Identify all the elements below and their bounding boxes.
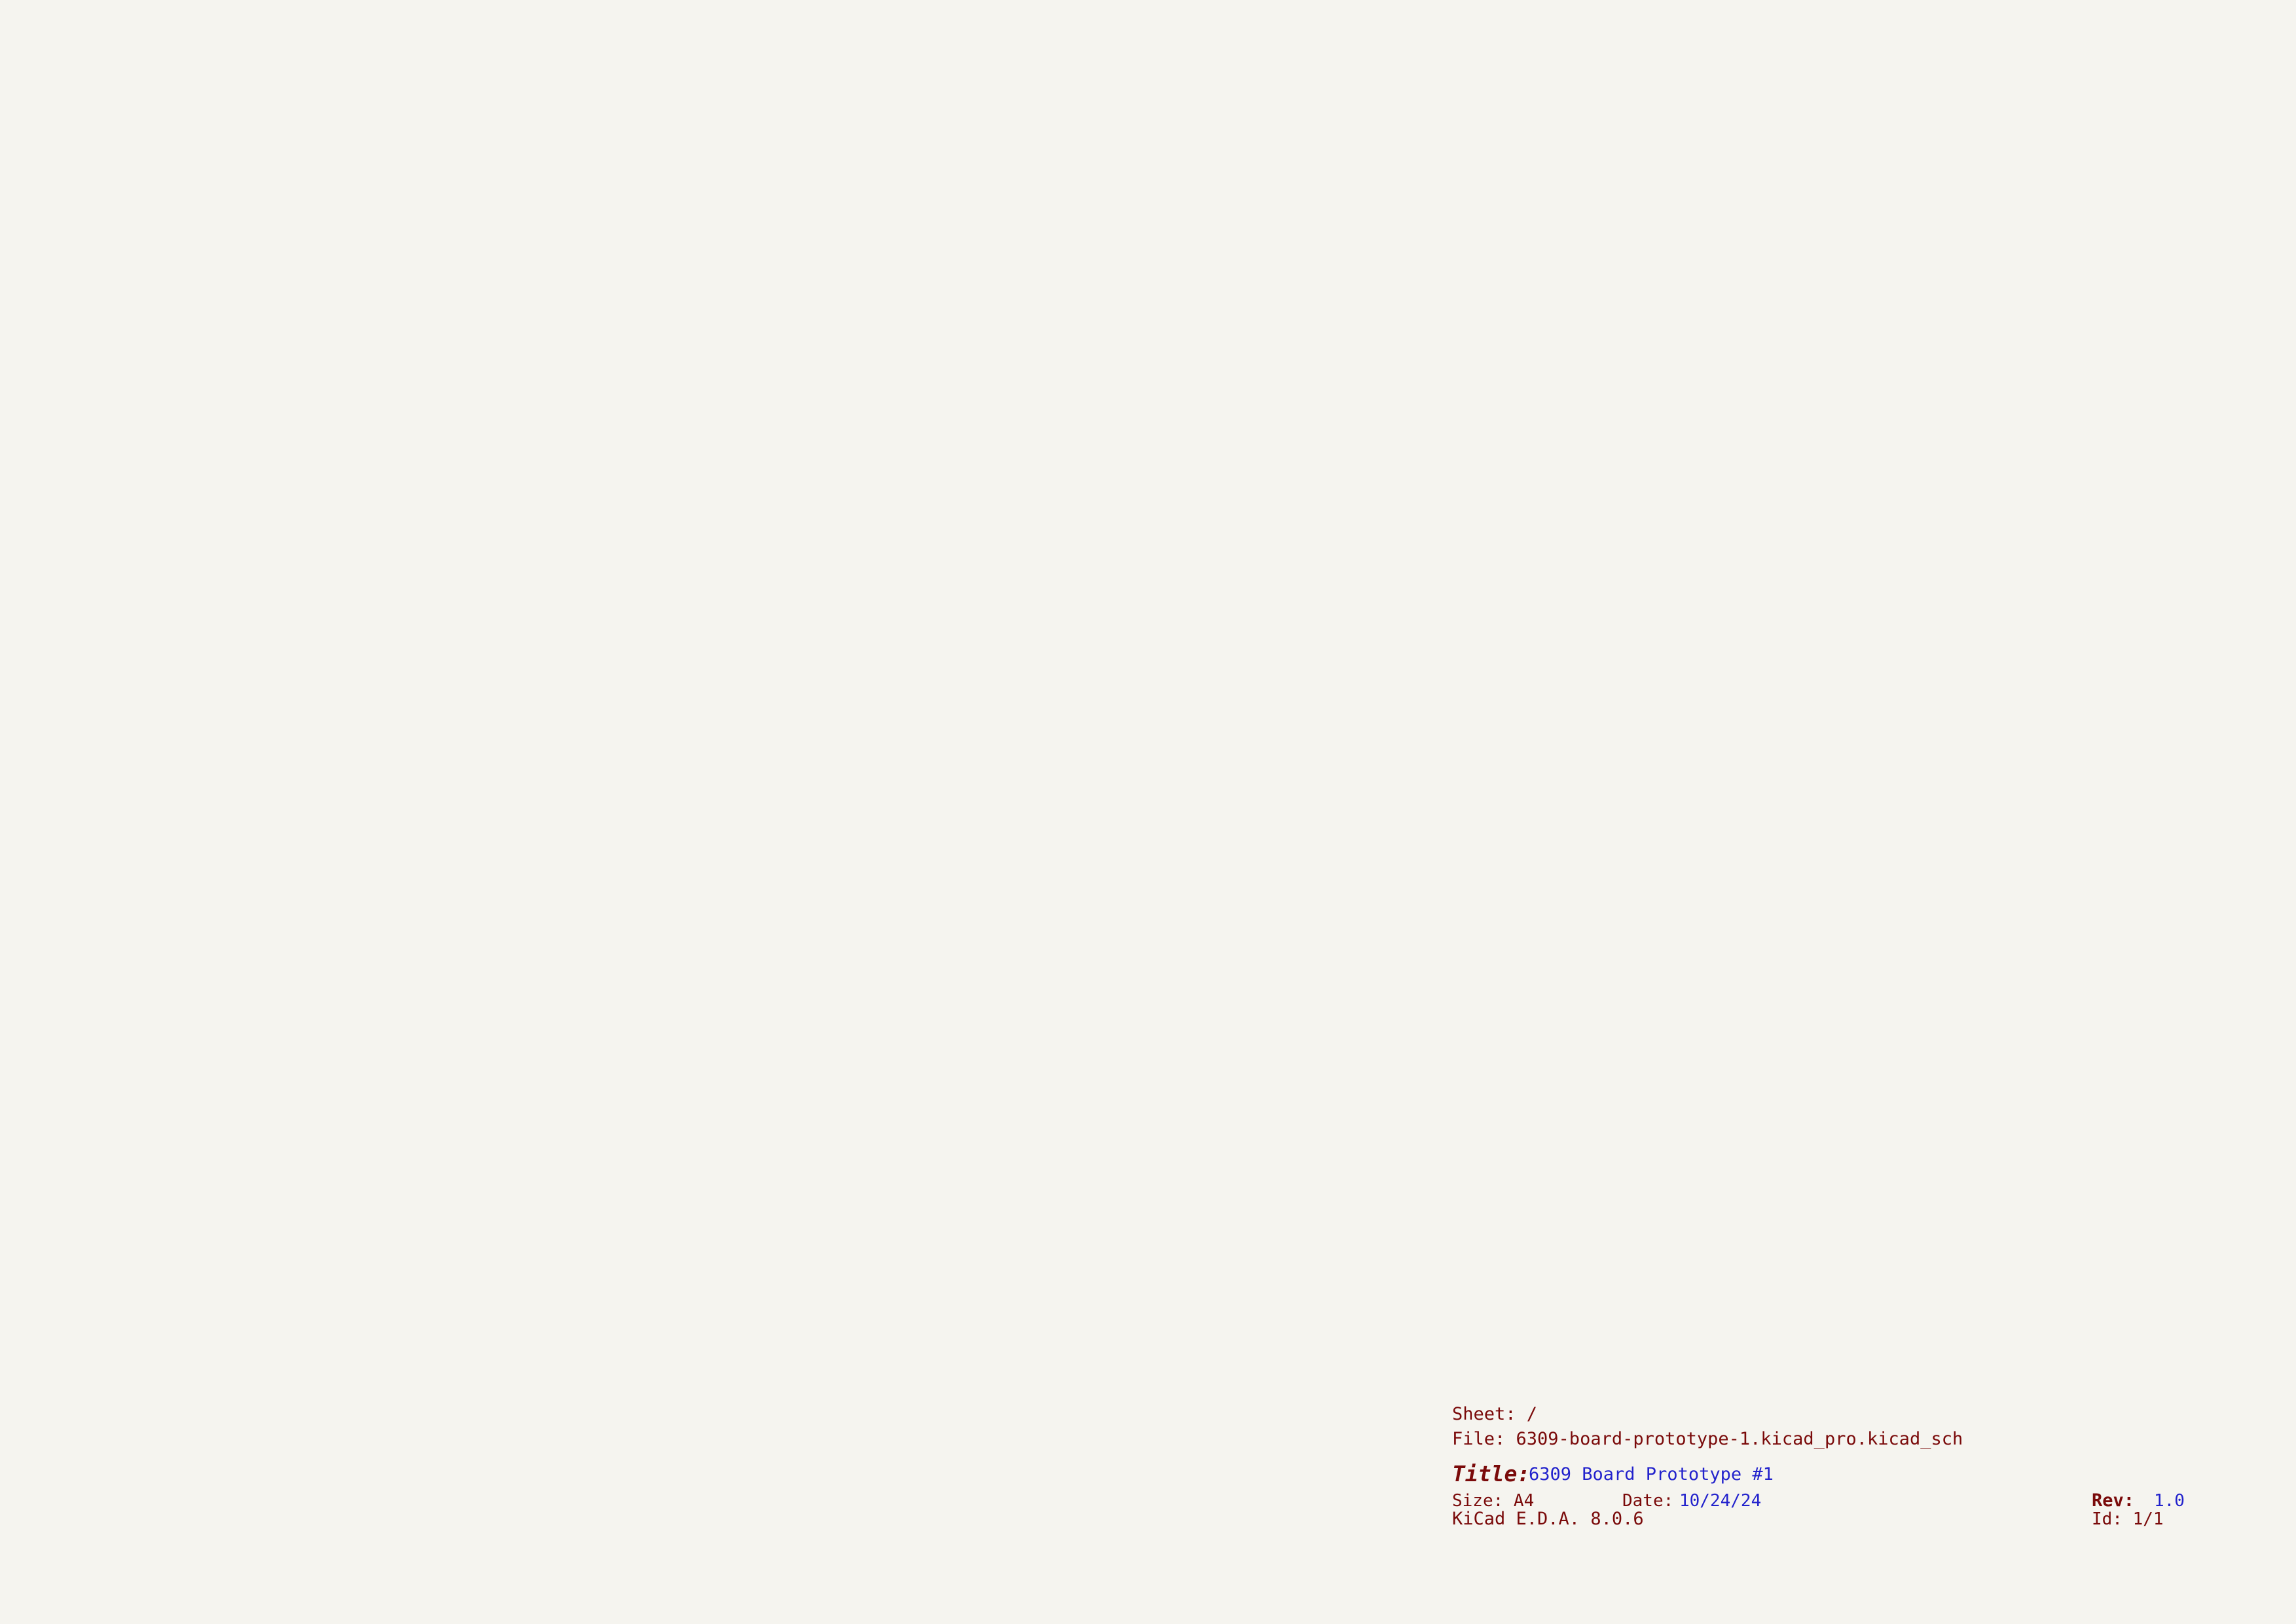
titleblock-title-label: Title: bbox=[1452, 1461, 1530, 1486]
titleblock-rev: 1.0 bbox=[2154, 1491, 2185, 1511]
titleblock-rev-label: Rev: bbox=[2092, 1490, 2134, 1511]
titleblock-title: 6309 Board Prototype #1 bbox=[1529, 1464, 1774, 1485]
titleblock-size: Size: A4 bbox=[1452, 1491, 1534, 1511]
titleblock-date: 10/24/24 bbox=[1679, 1491, 1761, 1511]
titleblock-date-label: Date: bbox=[1622, 1491, 1673, 1511]
title-block: Sheet: / File: 6309-board-prototype-1.ki… bbox=[1452, 1404, 2185, 1529]
kicad-schematic-sheet: Sheet: / File: 6309-board-prototype-1.ki… bbox=[0, 0, 2296, 1624]
titleblock-sheet: Sheet: / bbox=[1452, 1404, 1537, 1424]
titleblock-id: Id: 1/1 bbox=[2092, 1509, 2164, 1529]
titleblock-tool: KiCad E.D.A. 8.0.6 bbox=[1452, 1509, 1644, 1529]
titleblock-file: File: 6309-board-prototype-1.kicad_pro.k… bbox=[1452, 1429, 1963, 1449]
